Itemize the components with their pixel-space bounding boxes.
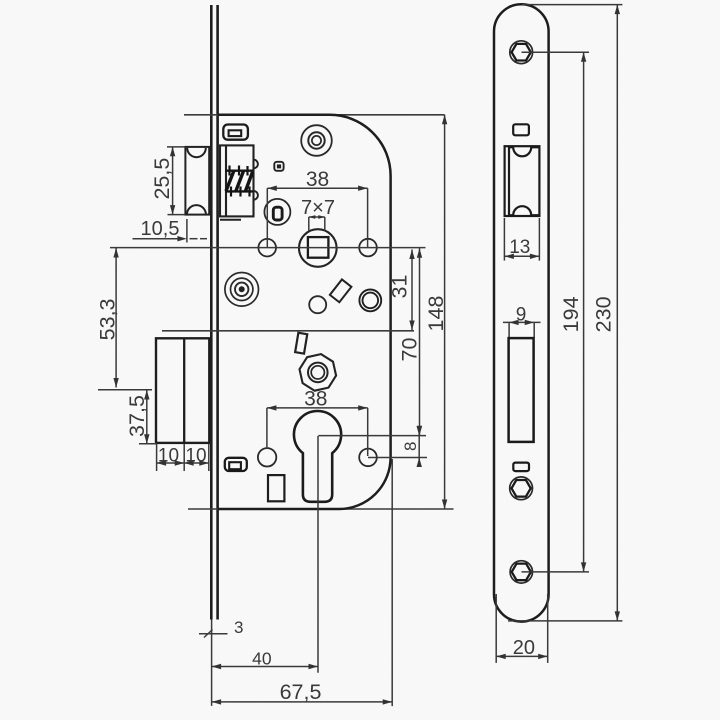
svg-text:67,5: 67,5 <box>280 680 322 704</box>
svg-text:40: 40 <box>252 649 272 669</box>
svg-text:8: 8 <box>401 442 420 451</box>
svg-text:53,3: 53,3 <box>95 298 119 340</box>
svg-text:230: 230 <box>592 296 616 332</box>
svg-text:10: 10 <box>185 446 206 467</box>
svg-text:7×7: 7×7 <box>301 197 335 219</box>
svg-text:20: 20 <box>513 637 535 659</box>
svg-text:10,5: 10,5 <box>141 218 180 240</box>
svg-text:37,5: 37,5 <box>125 395 149 437</box>
svg-text:70: 70 <box>397 338 421 362</box>
svg-text:148: 148 <box>424 296 448 332</box>
svg-text:9: 9 <box>516 305 527 326</box>
svg-text:31: 31 <box>388 275 412 299</box>
svg-text:194: 194 <box>559 296 583 332</box>
svg-text:13: 13 <box>509 237 530 258</box>
svg-text:25,5: 25,5 <box>150 158 174 200</box>
svg-text:3: 3 <box>234 618 243 637</box>
svg-text:38: 38 <box>304 388 327 411</box>
svg-text:38: 38 <box>306 168 329 191</box>
svg-text:10: 10 <box>158 446 179 467</box>
